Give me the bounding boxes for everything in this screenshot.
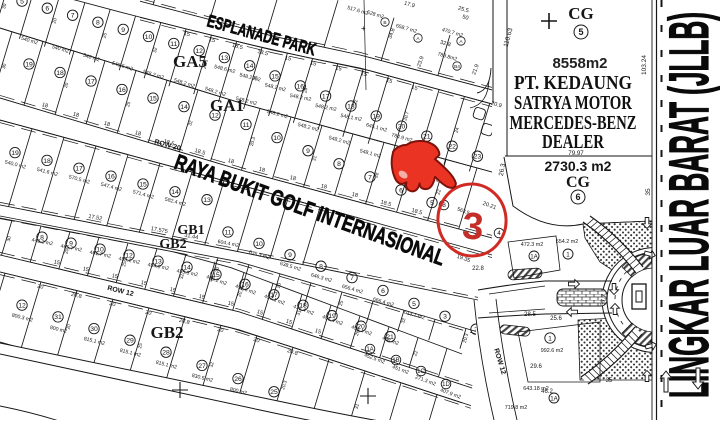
svg-text:1: 1 (548, 335, 552, 342)
svg-text:25.6: 25.6 (550, 316, 562, 322)
svg-text:9: 9 (306, 148, 310, 155)
svg-text:8: 8 (337, 161, 341, 168)
svg-text:9: 9 (288, 252, 292, 259)
svg-text:18: 18 (56, 70, 64, 77)
svg-text:8: 8 (319, 264, 323, 271)
svg-text:18: 18 (347, 103, 355, 110)
svg-text:13: 13 (203, 197, 211, 204)
svg-text:22.8: 22.8 (472, 266, 484, 272)
svg-text:28.5: 28.5 (524, 312, 536, 318)
svg-text:9: 9 (121, 27, 125, 34)
svg-text:23: 23 (474, 154, 482, 161)
svg-text:554.2 m2: 554.2 m2 (556, 239, 578, 245)
svg-text:27: 27 (198, 363, 206, 370)
svg-text:719.8 m2: 719.8 m2 (505, 405, 527, 411)
svg-text:8558m2: 8558m2 (552, 55, 607, 72)
svg-text:19: 19 (25, 61, 33, 68)
svg-text:18: 18 (43, 158, 51, 165)
svg-text:14: 14 (246, 63, 254, 70)
svg-text:B: B (383, 20, 386, 26)
svg-text:15: 15 (271, 73, 279, 80)
svg-text:3: 3 (443, 314, 447, 321)
svg-text:1A: 1A (530, 253, 538, 260)
svg-text:7: 7 (368, 174, 372, 181)
svg-text:6: 6 (399, 187, 403, 194)
svg-text:11: 11 (224, 229, 231, 236)
svg-text:5: 5 (20, 0, 24, 6)
svg-text:MERCEDES-BENZ: MERCEDES-BENZ (510, 113, 637, 134)
svg-text:17: 17 (322, 93, 330, 100)
svg-text:20: 20 (398, 124, 406, 131)
svg-text:7: 7 (71, 13, 75, 20)
svg-text:15: 15 (139, 181, 147, 188)
svg-text:11: 11 (170, 41, 177, 48)
svg-text:35: 35 (606, 378, 613, 384)
svg-text:B4: B4 (454, 64, 460, 70)
svg-text:CG: CG (568, 4, 594, 23)
svg-text:GB2: GB2 (159, 237, 186, 252)
svg-text:LINGKAR LUAR BARAT (JLLB): LINGKAR LUAR BARAT (JLLB) (657, 12, 720, 398)
svg-text:28: 28 (162, 350, 170, 357)
svg-text:21: 21 (423, 134, 431, 141)
svg-text:103.24: 103.24 (641, 55, 648, 75)
svg-text:10: 10 (255, 241, 263, 248)
svg-text:17: 17 (75, 166, 83, 173)
svg-text:19: 19 (11, 150, 19, 157)
svg-text:15: 15 (149, 96, 157, 103)
svg-text:16: 16 (107, 174, 115, 181)
svg-text:6: 6 (575, 192, 580, 202)
svg-text:5: 5 (430, 200, 434, 207)
svg-text:14: 14 (171, 189, 179, 196)
svg-text:8: 8 (96, 20, 100, 27)
svg-text:6: 6 (381, 288, 385, 295)
svg-text:14: 14 (180, 104, 188, 111)
svg-text:643.18 m2: 643.18 m2 (523, 386, 548, 392)
svg-text:31: 31 (54, 314, 62, 321)
svg-text:472.3 m2: 472.3 m2 (521, 242, 543, 248)
svg-text:PT. KEDAUNG: PT. KEDAUNG (514, 73, 632, 94)
svg-text:1A: 1A (550, 395, 558, 402)
svg-text:SATRYA MOTOR: SATRYA MOTOR (514, 93, 633, 114)
svg-text:4: 4 (497, 230, 501, 237)
svg-text:992.6 m2: 992.6 m2 (541, 348, 563, 354)
svg-text:1A: 1A (366, 347, 373, 353)
svg-text:13: 13 (221, 55, 229, 62)
svg-text:17: 17 (87, 78, 95, 85)
svg-text:7: 7 (350, 275, 354, 282)
svg-text:29: 29 (126, 338, 134, 345)
svg-text:15: 15 (335, 66, 342, 73)
svg-text:16: 16 (118, 87, 126, 94)
svg-text:12: 12 (18, 303, 26, 310)
svg-text:35: 35 (645, 188, 652, 196)
svg-text:GA1: GA1 (210, 96, 244, 115)
svg-text:10: 10 (273, 135, 281, 142)
svg-text:6: 6 (45, 6, 49, 13)
svg-text:30: 30 (90, 326, 98, 333)
svg-text:+: + (361, 24, 366, 33)
svg-text:5: 5 (578, 27, 583, 37)
svg-text:15: 15 (309, 61, 316, 68)
svg-text:16: 16 (297, 83, 305, 90)
svg-text:1B: 1B (392, 358, 399, 364)
svg-text:GB2: GB2 (150, 323, 183, 342)
svg-text:5: 5 (412, 301, 416, 308)
svg-text:26: 26 (234, 376, 242, 383)
svg-text:29.6: 29.6 (530, 364, 542, 370)
svg-text:22: 22 (448, 144, 456, 151)
svg-text:1: 1 (566, 251, 570, 258)
svg-text:25: 25 (270, 389, 278, 396)
svg-text:10: 10 (145, 34, 153, 41)
svg-text:37.7: 37.7 (601, 293, 608, 306)
svg-text:CG: CG (566, 174, 591, 191)
svg-text:11: 11 (242, 122, 249, 129)
svg-text:3: 3 (461, 205, 485, 248)
svg-text:GA5: GA5 (173, 52, 207, 71)
svg-text:2730.3 m2: 2730.3 m2 (545, 158, 612, 174)
svg-text:15: 15 (284, 55, 291, 62)
svg-text:79.97: 79.97 (568, 150, 584, 157)
svg-text:GB1: GB1 (177, 223, 204, 238)
svg-text:19: 19 (372, 113, 380, 120)
